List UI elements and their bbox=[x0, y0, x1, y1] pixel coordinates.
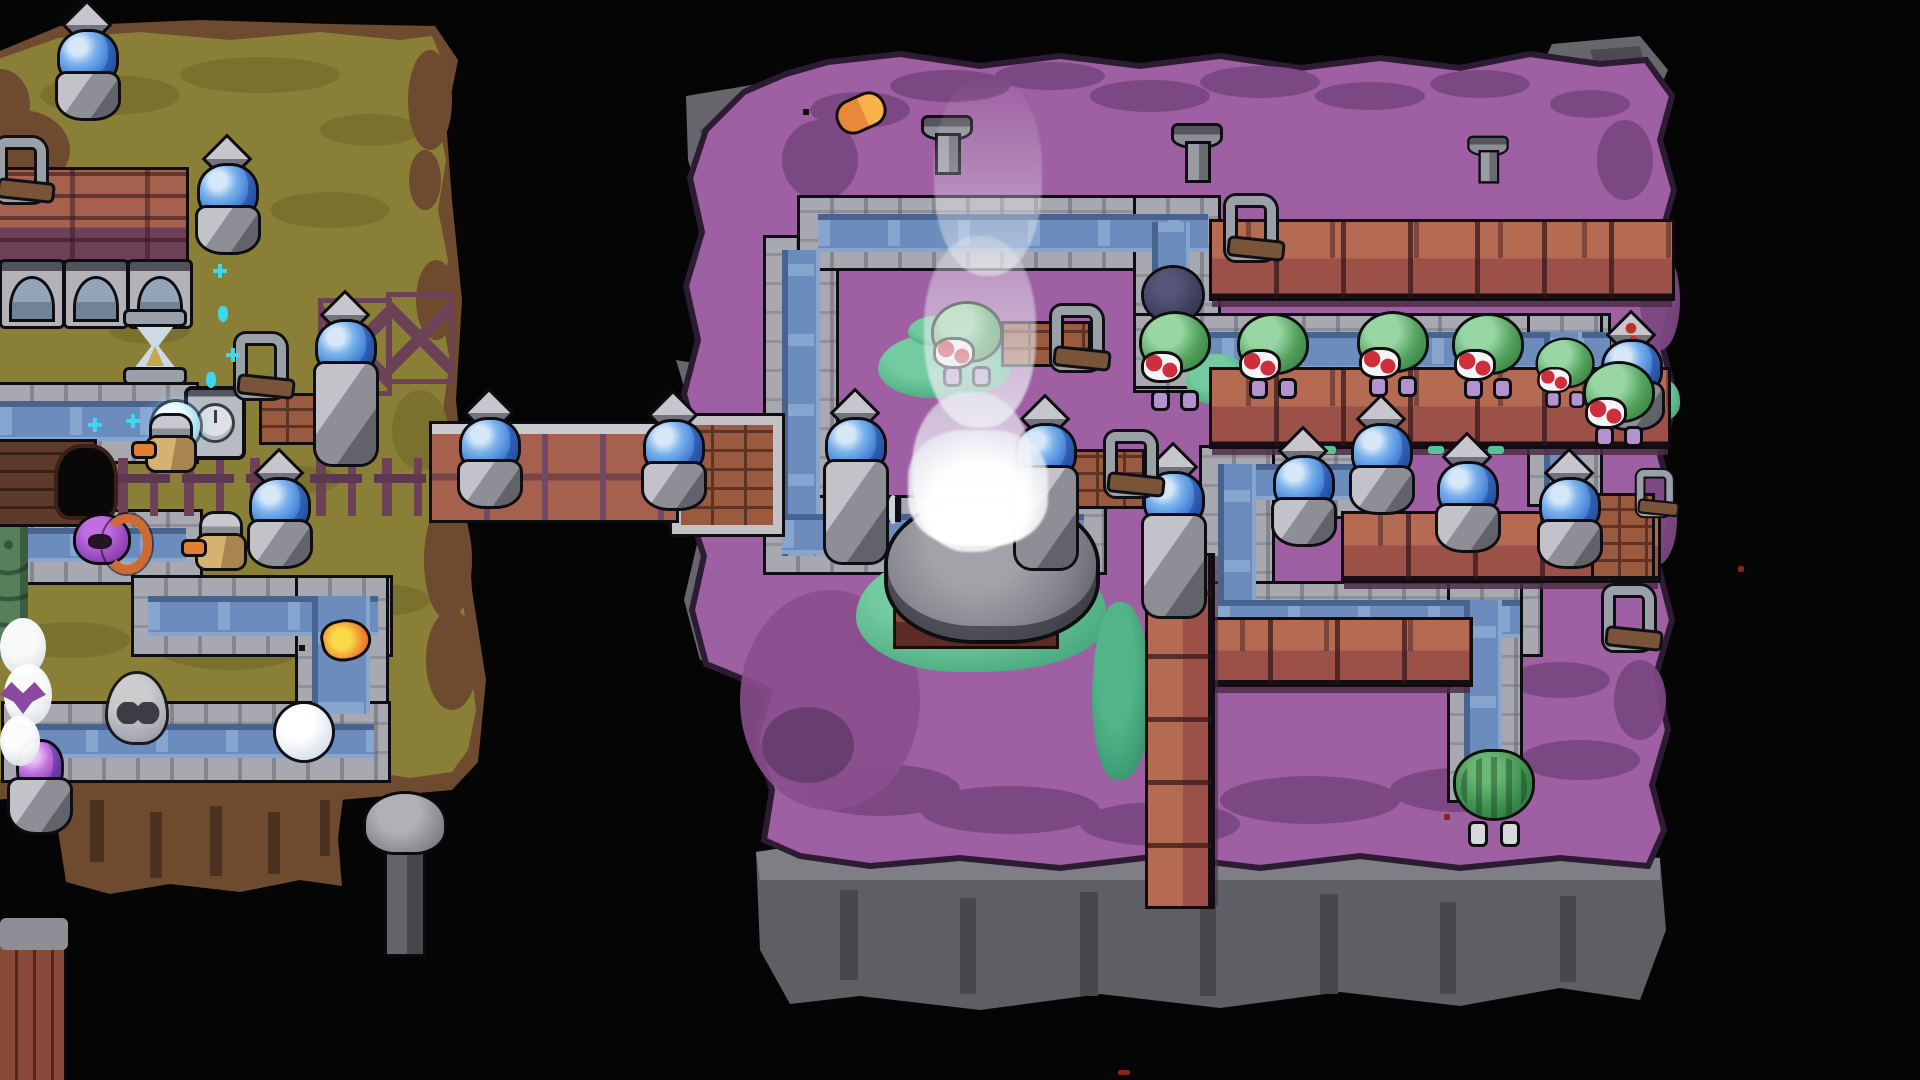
willow-dome bbox=[1456, 752, 1532, 818]
sparkle-icon bbox=[218, 306, 228, 322]
crystal-ped bbox=[1438, 506, 1498, 550]
arch-machine[interactable] bbox=[66, 262, 126, 326]
ember-speck bbox=[1444, 814, 1450, 820]
crystal-ped bbox=[460, 462, 520, 506]
ghost-eyes bbox=[116, 702, 160, 724]
lever-sign[interactable] bbox=[1600, 586, 1664, 646]
hourglass-top bbox=[126, 312, 184, 324]
enemy-legr bbox=[1572, 393, 1583, 405]
stone-cap bbox=[0, 918, 68, 950]
mana-crystal-tower[interactable] bbox=[824, 398, 888, 510]
mana-crystal-tower[interactable] bbox=[56, 10, 120, 122]
mana-crystal-tower[interactable] bbox=[642, 400, 706, 512]
crystal-ped bbox=[58, 74, 118, 118]
steam-cloud bbox=[908, 430, 1048, 546]
knight-helm bbox=[202, 514, 240, 538]
ember-speck bbox=[1118, 1070, 1130, 1075]
hourglass-machine[interactable] bbox=[124, 312, 186, 382]
knight-beak bbox=[134, 444, 154, 456]
mana-crystal-tower[interactable] bbox=[248, 458, 312, 570]
cave-hole bbox=[58, 448, 114, 516]
knight-beak bbox=[184, 542, 204, 554]
sparkle-icon bbox=[206, 372, 216, 388]
mana-crystal-tower[interactable] bbox=[1538, 458, 1602, 570]
wood-sign[interactable] bbox=[262, 396, 314, 442]
stone-mushroom bbox=[366, 794, 444, 954]
enemy-legl bbox=[1467, 381, 1480, 396]
white-orb[interactable] bbox=[276, 704, 332, 760]
ghost[interactable] bbox=[106, 674, 168, 750]
knight-character[interactable] bbox=[192, 514, 254, 572]
enemy-face bbox=[1242, 352, 1278, 378]
sprout-creature-carrier[interactable] bbox=[1142, 268, 1208, 408]
crystal-ped bbox=[1352, 468, 1412, 512]
sprout-creature[interactable] bbox=[1240, 316, 1306, 396]
crystal-ped bbox=[198, 208, 258, 252]
hood-face bbox=[88, 534, 112, 549]
mana-crystal-tower[interactable] bbox=[1272, 436, 1336, 548]
mushroom-dome bbox=[366, 794, 444, 852]
mana-crystal-tower[interactable] bbox=[458, 398, 522, 510]
lever-sign[interactable] bbox=[1102, 432, 1166, 492]
lever-sign[interactable] bbox=[1048, 306, 1112, 366]
mana-crystal-tower[interactable] bbox=[1350, 404, 1414, 516]
crystal-ped bbox=[826, 462, 886, 562]
stone-brazier[interactable] bbox=[1172, 126, 1224, 184]
enemy-legr bbox=[1183, 393, 1196, 408]
crystal-ped bbox=[1540, 522, 1600, 566]
crystal-ped bbox=[10, 780, 70, 832]
sparkle-icon bbox=[213, 264, 227, 278]
knight-character[interactable] bbox=[142, 416, 204, 474]
enemy-legl bbox=[1372, 379, 1385, 394]
crystal-ped bbox=[644, 464, 704, 508]
enemy-face bbox=[1144, 354, 1180, 380]
lever-sign[interactable] bbox=[0, 138, 56, 198]
enemy-legr bbox=[1496, 381, 1509, 396]
bubble-icon bbox=[888, 495, 898, 524]
cross-fence bbox=[386, 292, 454, 384]
enemy-face bbox=[1457, 352, 1493, 378]
brazier-post bbox=[1188, 144, 1208, 180]
sprout-creature[interactable] bbox=[1455, 316, 1521, 396]
sparkle-icon bbox=[88, 418, 102, 432]
enemy-face bbox=[1362, 350, 1398, 376]
brazier-post bbox=[1481, 152, 1497, 181]
knight-body bbox=[148, 438, 194, 470]
sprout-creature[interactable] bbox=[1538, 340, 1592, 406]
enemy-legl bbox=[1598, 429, 1611, 444]
knight-body bbox=[198, 536, 244, 568]
enemy-legr bbox=[1401, 379, 1414, 394]
sparkle-icon bbox=[226, 348, 240, 362]
walkway bbox=[1206, 620, 1470, 684]
hourglass-bot bbox=[126, 370, 184, 382]
enemy-face bbox=[1540, 370, 1570, 391]
enemy-legl bbox=[1548, 393, 1559, 405]
enemy-legr bbox=[1627, 429, 1640, 444]
sprout-creature[interactable] bbox=[1360, 314, 1426, 394]
crystal-ped bbox=[1144, 516, 1204, 616]
lever-sign[interactable] bbox=[1634, 470, 1680, 513]
enemy-legl bbox=[1252, 381, 1265, 396]
sprout-creature[interactable] bbox=[1586, 364, 1652, 444]
knight-helm bbox=[152, 416, 190, 440]
lever-sign[interactable] bbox=[232, 334, 296, 394]
enemy-legl bbox=[1154, 393, 1167, 408]
mushroom-stem bbox=[387, 846, 423, 954]
grass-patch bbox=[1092, 602, 1150, 780]
enemy-face bbox=[1588, 400, 1624, 426]
crystal-ped bbox=[316, 364, 376, 464]
lever-sign[interactable] bbox=[1222, 196, 1286, 256]
brazier-bowl bbox=[1174, 126, 1220, 146]
willow-legl bbox=[1471, 824, 1485, 844]
crystal-ped bbox=[1274, 500, 1334, 544]
arch-machine[interactable] bbox=[2, 262, 62, 326]
mana-crystal-tower[interactable] bbox=[1436, 442, 1500, 554]
mana-crystal-tower[interactable] bbox=[196, 144, 260, 256]
torch-tower[interactable] bbox=[806, 112, 936, 318]
game-viewport bbox=[0, 0, 1920, 1080]
stone-brazier[interactable] bbox=[1468, 138, 1510, 184]
mana-crystal-tower[interactable] bbox=[314, 300, 378, 412]
clock-hand bbox=[214, 410, 217, 423]
crystal-ped bbox=[250, 522, 310, 566]
willow-creature[interactable] bbox=[1456, 752, 1532, 844]
willow-legr bbox=[1503, 824, 1517, 844]
sparkle-icon bbox=[126, 414, 140, 428]
hooded-character[interactable] bbox=[76, 512, 136, 570]
ember-speck bbox=[1738, 566, 1744, 572]
enemy-legr bbox=[1281, 381, 1294, 396]
steam-puff bbox=[0, 716, 40, 766]
